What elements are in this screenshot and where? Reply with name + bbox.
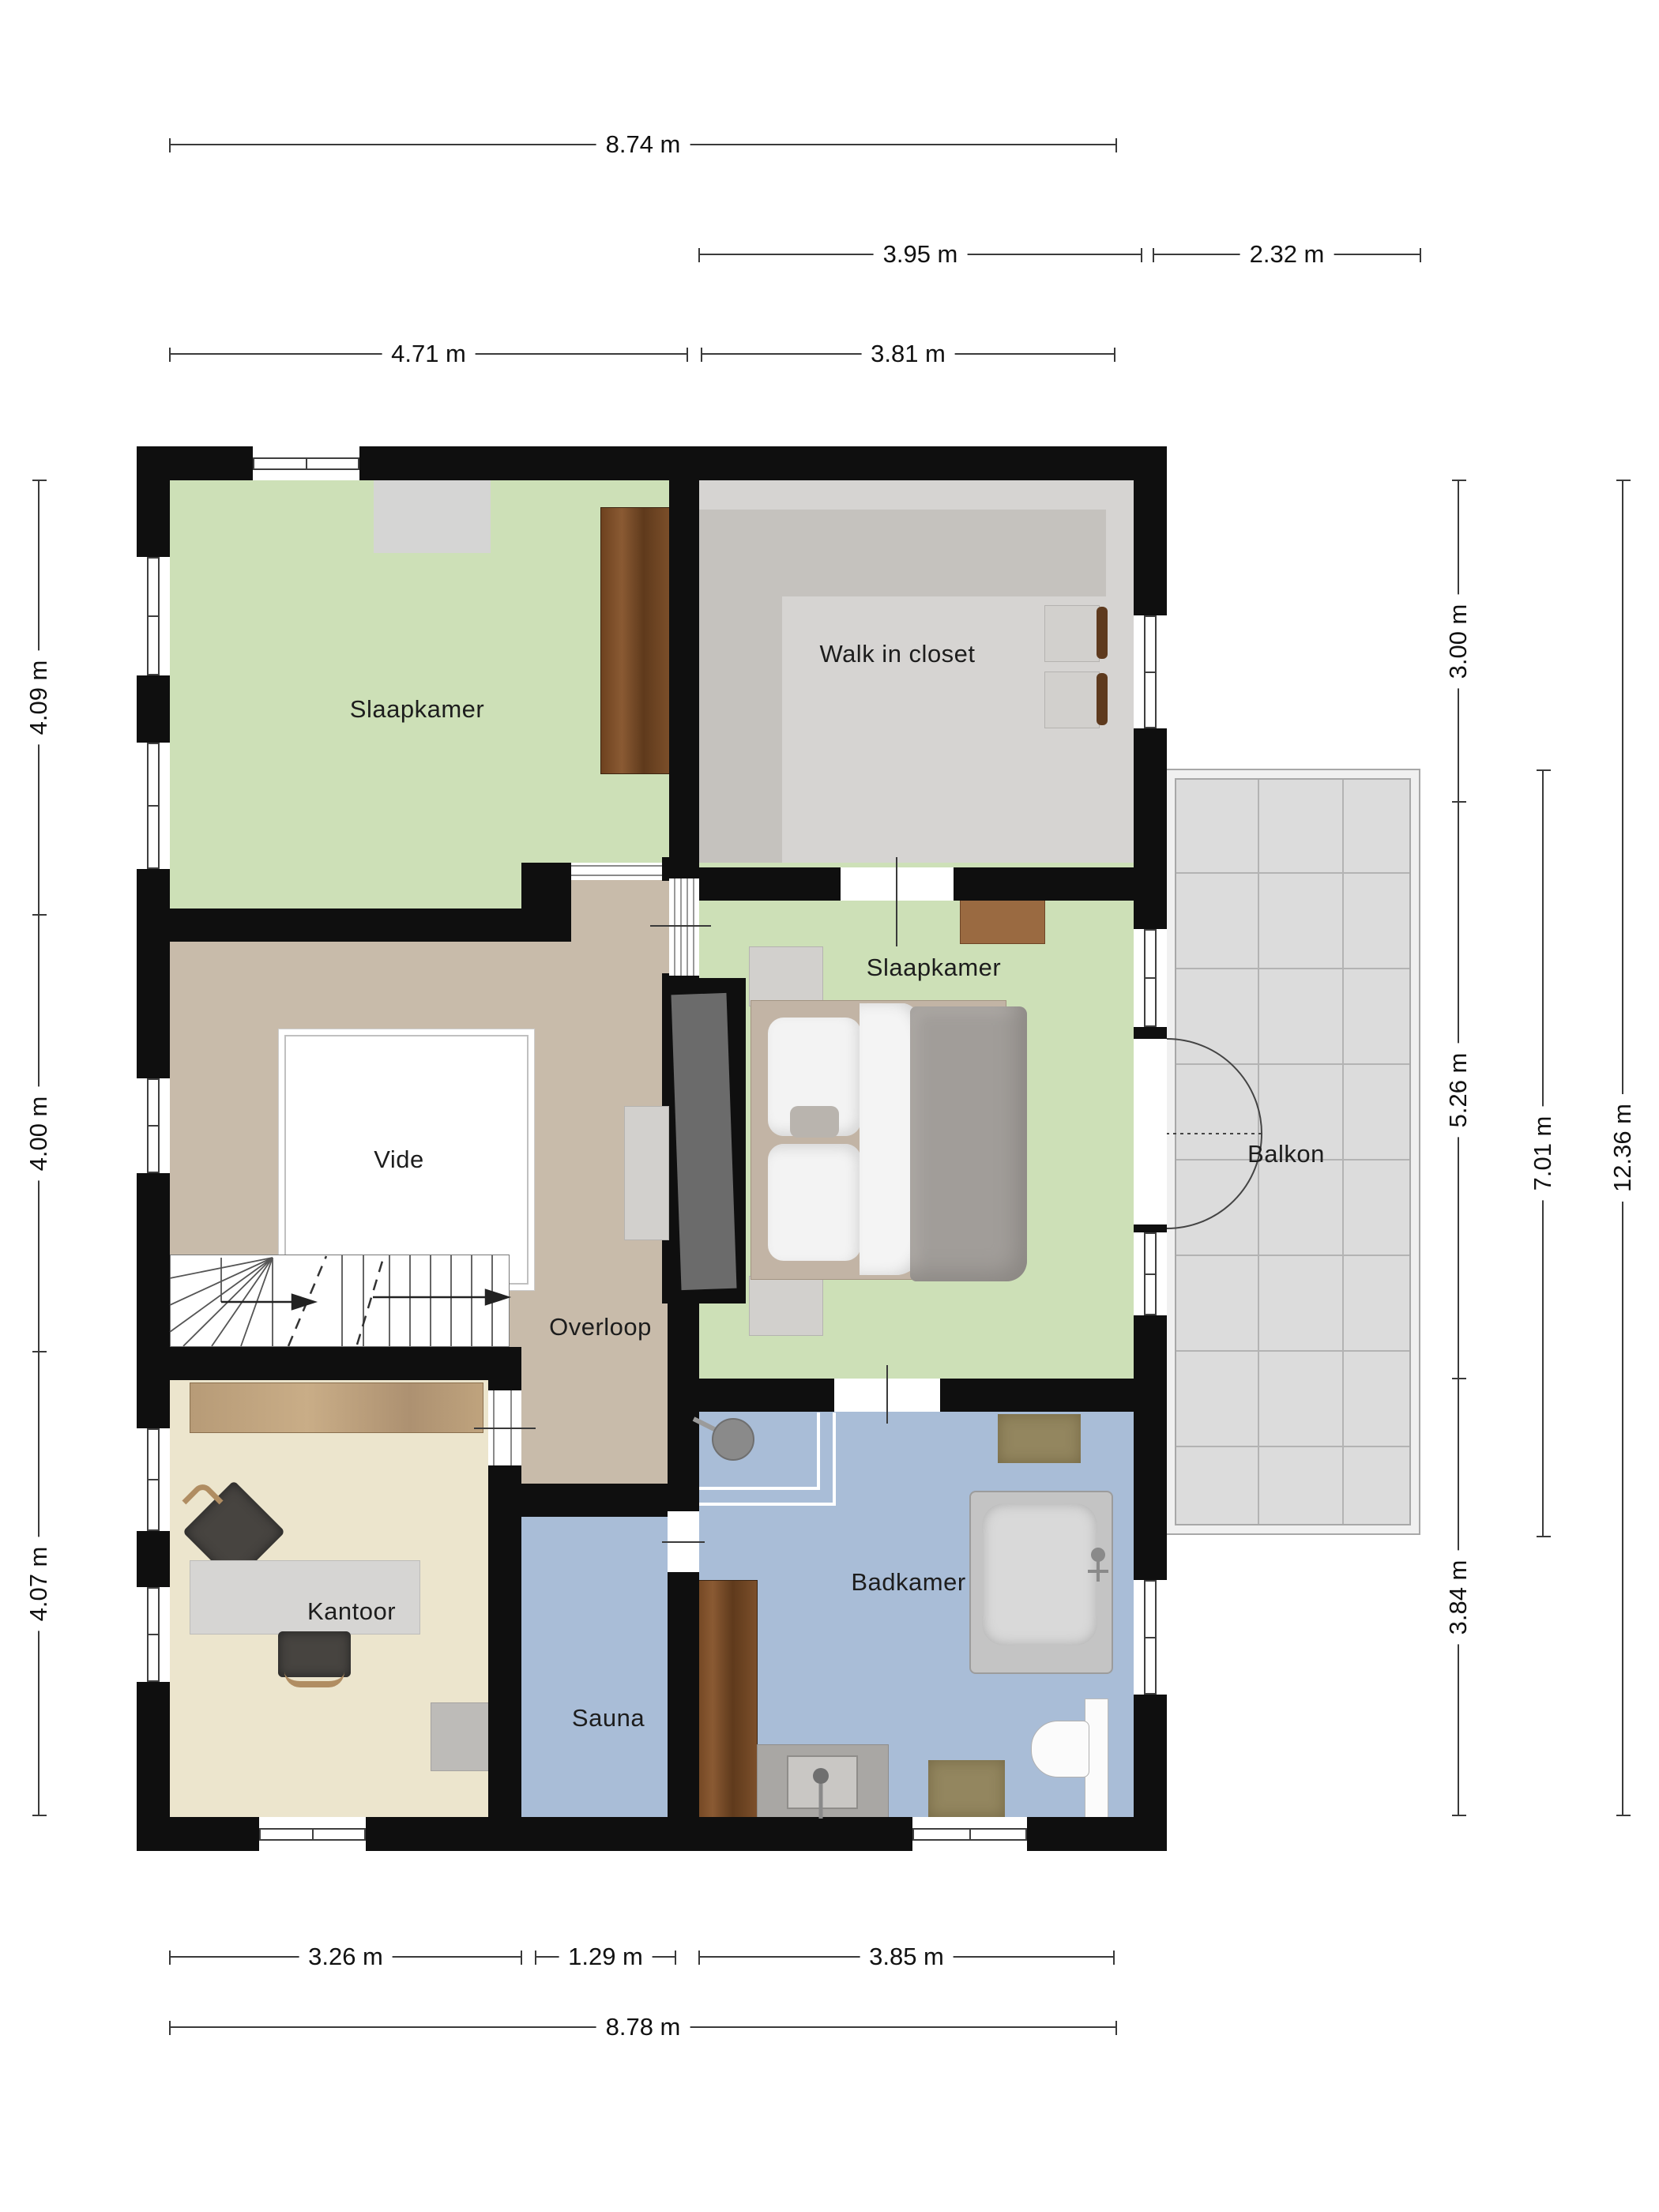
dimension-bottom-bathroom: 3.85 m bbox=[699, 1956, 1114, 1958]
wall-under-stairs bbox=[170, 1347, 521, 1380]
dimension-bottom-sauna: 1.29 m bbox=[536, 1956, 675, 1958]
balcony-door-opening bbox=[1134, 1039, 1167, 1224]
dimension-left-top: 4.09 m bbox=[38, 480, 39, 915]
bath-mat bbox=[928, 1760, 1005, 1817]
floor-sauna bbox=[521, 1517, 668, 1818]
door-sauna bbox=[668, 1511, 699, 1572]
wall-jog bbox=[521, 863, 571, 942]
window bbox=[137, 743, 170, 869]
dimension-right-closet: 3.00 m bbox=[1458, 480, 1459, 802]
office-mat bbox=[431, 1702, 491, 1771]
bathtub-basin bbox=[982, 1503, 1097, 1646]
room-label-badkamer: Badkamer bbox=[851, 1568, 965, 1597]
dimension-top-balcony: 2.32 m bbox=[1153, 254, 1420, 255]
bathroom-cabinet bbox=[693, 1580, 758, 1819]
office-chair-arm bbox=[284, 1668, 344, 1687]
window bbox=[137, 557, 170, 675]
nightstand bbox=[749, 946, 823, 1006]
closet-stool bbox=[1044, 671, 1100, 728]
wall-closet-left bbox=[669, 480, 699, 863]
closet-stool-back bbox=[1097, 673, 1108, 725]
door-bedroomTL bbox=[571, 863, 662, 880]
built-in-wardrobe-door bbox=[671, 993, 736, 1290]
closet-stool bbox=[1044, 605, 1100, 662]
window bbox=[137, 1428, 170, 1531]
bed-duvet bbox=[910, 1006, 1027, 1281]
window bbox=[137, 1078, 170, 1173]
window bbox=[1134, 615, 1167, 728]
dimension-top-right-room: 3.81 m bbox=[702, 353, 1115, 355]
dimension-right-bedroom: 5.26 m bbox=[1458, 802, 1459, 1379]
rug bbox=[374, 480, 491, 553]
office-sideboard bbox=[190, 1382, 483, 1433]
bath-mat bbox=[998, 1414, 1081, 1463]
window bbox=[137, 1587, 170, 1682]
dimension-left-middle: 4.00 m bbox=[38, 915, 39, 1352]
room-label-kantoor: Kantoor bbox=[307, 1597, 396, 1626]
room-label-bedroom-right: Slaapkamer bbox=[867, 954, 1001, 982]
dimension-right-bathroom: 3.84 m bbox=[1458, 1379, 1459, 1815]
dimension-bottom-total: 8.78 m bbox=[170, 2026, 1116, 2028]
wall-badkamer-left bbox=[668, 1379, 699, 1818]
dimension-top-closet: 3.95 m bbox=[699, 254, 1142, 255]
nightstand bbox=[749, 1276, 823, 1336]
dimension-bottom-office: 3.26 m bbox=[170, 1956, 521, 1958]
window bbox=[1134, 929, 1167, 1027]
window bbox=[912, 1817, 1027, 1851]
wall-bedroomR-left-lower bbox=[668, 1300, 699, 1379]
vanity-sink bbox=[787, 1755, 858, 1809]
dimension-top-total: 8.74 m bbox=[170, 144, 1116, 145]
dimension-right-balcony: 7.01 m bbox=[1542, 770, 1544, 1537]
window bbox=[253, 446, 359, 480]
closet-wardrobe-left bbox=[699, 510, 782, 867]
room-label-overloop: Overloop bbox=[549, 1313, 652, 1341]
dimension-right-total: 12.36 m bbox=[1622, 480, 1623, 1815]
bed-center-pillow bbox=[790, 1106, 839, 1138]
door-kantoor bbox=[488, 1390, 521, 1465]
door-walk-in-closet bbox=[841, 867, 954, 901]
window bbox=[1134, 1580, 1167, 1695]
room-label-bedroom-top-left: Slaapkamer bbox=[350, 695, 484, 724]
wall-partition-lower bbox=[662, 973, 699, 989]
floor-plan: Slaapkamer Walk in closet Slaapkamer Vid… bbox=[0, 0, 1659, 2212]
overloop-cabinet bbox=[624, 1106, 669, 1240]
window bbox=[259, 1817, 366, 1851]
wall-sauna-top bbox=[488, 1484, 668, 1517]
bed-pillow bbox=[768, 1144, 861, 1261]
wardrobe-cabinet bbox=[600, 507, 671, 774]
glass-partition bbox=[669, 878, 699, 976]
room-label-vide: Vide bbox=[374, 1145, 424, 1174]
room-label-sauna: Sauna bbox=[572, 1704, 645, 1732]
closet-stool-back bbox=[1097, 607, 1108, 659]
toilet bbox=[1031, 1721, 1089, 1777]
room-label-balkon: Balkon bbox=[1247, 1140, 1325, 1168]
room-label-walk-in-closet: Walk in closet bbox=[819, 640, 975, 668]
dimension-top-left-room: 4.71 m bbox=[170, 353, 687, 355]
window bbox=[1134, 1232, 1167, 1315]
door-badkamer bbox=[834, 1379, 940, 1412]
staircase bbox=[170, 1255, 510, 1347]
dimension-left-bottom: 4.07 m bbox=[38, 1352, 39, 1815]
wall-bedroomTL-bottom bbox=[170, 908, 521, 942]
